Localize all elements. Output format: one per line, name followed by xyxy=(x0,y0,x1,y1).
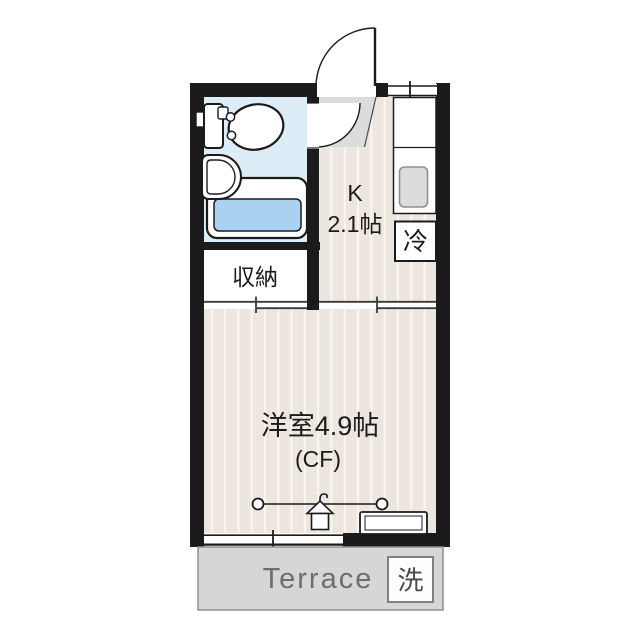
floorplan-image: 冷 Terrace 洗 K 2.1帖 収納 洋室4. xyxy=(0,0,640,640)
hanger-rail-end-right xyxy=(377,499,388,510)
hanger-rail-end-left xyxy=(253,499,264,510)
wall-top-left xyxy=(190,83,317,97)
terrace-label: Terrace xyxy=(263,563,374,595)
ac-unit xyxy=(360,512,427,534)
bathtub-water xyxy=(214,199,301,231)
kitchen-label: K xyxy=(347,180,363,206)
entrance-opening xyxy=(317,83,376,97)
washer-label: 洗 xyxy=(397,566,423,596)
toilet-hinge-bottom xyxy=(227,131,235,139)
wall-left xyxy=(190,83,204,547)
wall-top-mid xyxy=(376,83,388,97)
floorplan-canvas: 冷 Terrace 洗 K 2.1帖 収納 洋室4. xyxy=(0,0,640,640)
stove xyxy=(400,167,428,207)
storage-label: 収納 xyxy=(232,264,278,290)
kitchen-area-label: 2.1帖 xyxy=(328,211,383,237)
wall-bottom-right xyxy=(343,533,450,547)
wall-bathroom-bottom xyxy=(190,242,320,250)
bathroom-door xyxy=(307,103,319,149)
wall-bathroom-divider xyxy=(307,149,319,310)
western-room-label: 洋室4.9帖 xyxy=(261,411,380,441)
western-room-flooring-label: (CF) xyxy=(295,446,341,472)
hanger-body xyxy=(312,514,329,530)
refrigerator-label: 冷 xyxy=(403,228,428,256)
wall-bathroom-divider-top xyxy=(307,97,319,103)
toilet-hinge-top xyxy=(226,113,234,121)
toilet-flush-handle xyxy=(196,112,204,127)
wall-right xyxy=(436,83,450,547)
